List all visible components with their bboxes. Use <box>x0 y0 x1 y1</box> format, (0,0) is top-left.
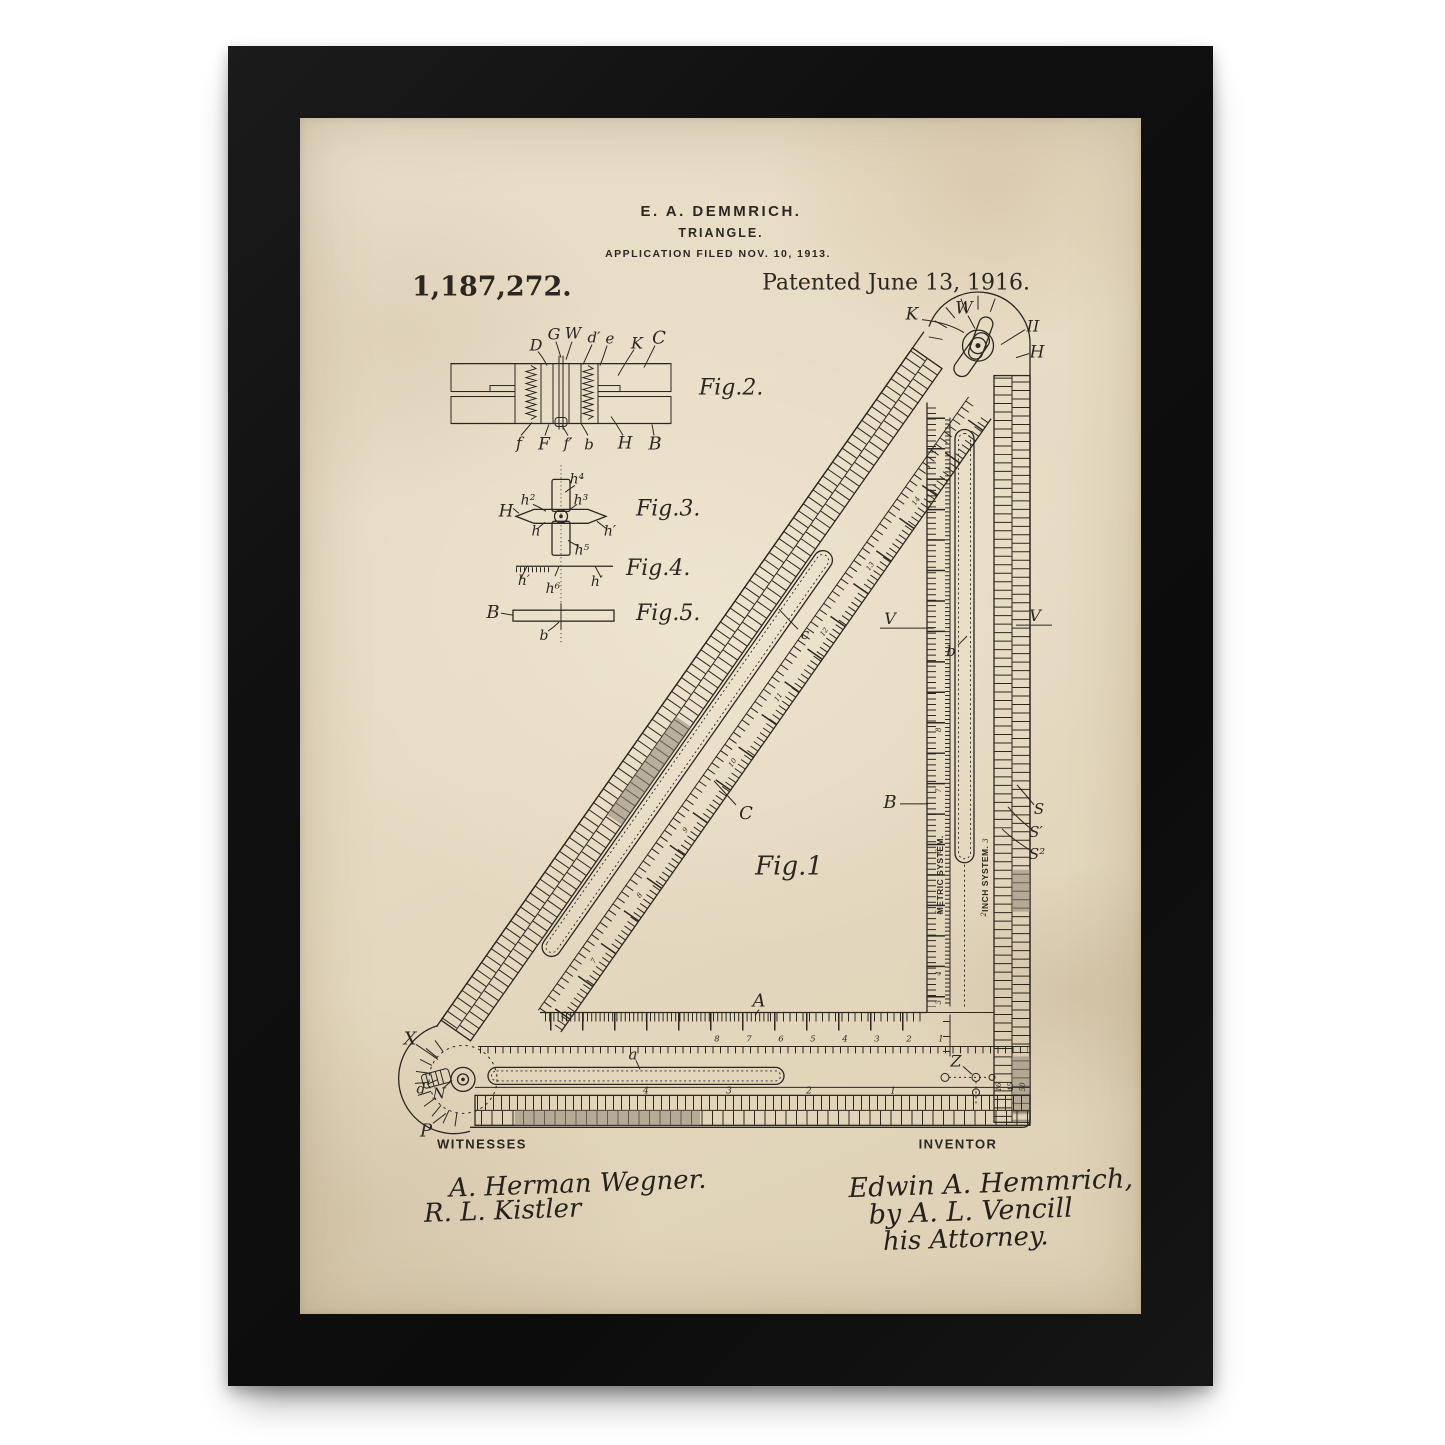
metric-num: 6 <box>935 849 943 854</box>
fig3-label: Fig.3. <box>635 496 700 521</box>
fig1-callout-d: d <box>417 1081 426 1097</box>
fig1-callout-ii: II <box>1026 317 1040 336</box>
fig2-callout-f-cap: F <box>537 434 551 454</box>
fig3-callout-h2: h² <box>521 492 536 508</box>
fig2-callout-c: C <box>652 328 666 349</box>
fig2-callout-k: K <box>630 334 644 353</box>
corner-num: 16 <box>995 1082 1003 1091</box>
inventor-label: INVENTOR <box>919 1136 998 1151</box>
metric-num: 4 <box>935 971 943 976</box>
fig5-bar <box>513 610 614 621</box>
patent-header: E. A. DEMMRICH. TRIANGLE. APPLICATION FI… <box>412 203 1030 303</box>
metric-system-label: METRIC SYSTEM. <box>935 835 945 914</box>
fig1-hypotenuse-arm: 7 8 9 10 11 12 13 14 <box>436 332 1010 1087</box>
rack-num: 4 <box>642 1086 649 1096</box>
fig2-callout-d-prime: d′ <box>588 329 602 347</box>
fig1-callout-c-arm: C <box>739 803 753 824</box>
patent-paper: E. A. DEMMRICH. TRIANGLE. APPLICATION FI… <box>300 118 1141 1314</box>
header-inventor-name: E. A. DEMMRICH. <box>641 203 802 220</box>
fig1-callout-k: K <box>905 305 920 325</box>
corner-num: 45 <box>1007 1082 1015 1092</box>
witnesses-label: WITNESSES <box>437 1136 527 1151</box>
fig3-callout-h5: h⁵ <box>575 542 590 558</box>
fig1-callout-h: H <box>1029 343 1046 363</box>
fig4-callout-h-prime-right: h′ <box>591 574 604 590</box>
fig1-callout-z: Z <box>949 1051 962 1070</box>
rack-num: 2 <box>805 1086 812 1096</box>
attorney-line: his Attorney. <box>882 1221 1048 1257</box>
fig1-callouts: V V b c C B A a S S′ S² Fig.1 <box>629 606 1052 1069</box>
inch-num: 3 <box>982 838 990 843</box>
fig5-label: Fig.5. <box>635 601 700 626</box>
fig3-callout-h3: h³ <box>574 492 589 508</box>
bottom-num: 5 <box>810 1034 815 1044</box>
metric-num: 3 <box>935 1000 943 1005</box>
rack-num: 1 <box>890 1086 896 1096</box>
hyp-num: 10 <box>727 756 739 768</box>
hyp-num: 13 <box>864 560 876 572</box>
fig1-callout-p: P <box>419 1120 433 1141</box>
fig1-callout-s2: S² <box>1029 845 1045 863</box>
fig2-callout-f-prime: f′ <box>563 434 574 452</box>
fig1-callout-s1: S′ <box>1029 823 1043 841</box>
fig2-section: D G W d′ e K C f F f′ b H B Fig.2. <box>451 324 763 455</box>
fig2-callout-w: W <box>565 324 583 343</box>
fig1-callout-n: N <box>431 1084 446 1102</box>
hyp-num: 14 <box>910 495 922 507</box>
fig3-callout-h: h <box>531 523 540 539</box>
bottom-num: 8 <box>714 1034 720 1044</box>
bottom-num: 3 <box>874 1034 879 1044</box>
bottom-num: 7 <box>746 1034 752 1044</box>
patent-drawing: E. A. DEMMRICH. TRIANGLE. APPLICATION FI… <box>300 118 1141 1314</box>
fig3-callout-h4: h⁴ <box>570 471 585 487</box>
fig2-label: Fig.2. <box>698 376 763 401</box>
fig1-callout-b-arm: B <box>882 792 896 813</box>
fig1-triangle-tool: 7 8 9 10 11 12 13 14 <box>399 292 1052 1141</box>
metric-num: 7 <box>935 788 943 793</box>
header-title: TRIANGLE. <box>678 226 763 240</box>
bottom-num: 4 <box>841 1034 847 1044</box>
fig4-callout-h-prime-left: h′ <box>518 573 531 589</box>
hyp-num: 8 <box>635 891 644 900</box>
fig2-callout-e: e <box>606 330 615 348</box>
hyp-num: 12 <box>819 626 831 638</box>
fig5-callout-b-cap: B <box>485 602 499 623</box>
bottom-num: 6 <box>778 1034 784 1044</box>
inch-num: 2 <box>980 912 988 918</box>
fig5-callout-b: b <box>540 628 549 644</box>
fig2-callout-b-cap: B <box>647 433 661 454</box>
fig1-callout-b-slot: b <box>946 642 956 660</box>
fig3-callout-h-prime: h′ <box>604 523 617 539</box>
fig2-callout-g: G <box>548 325 561 344</box>
fig1-bottom-left-corner: X d N P <box>399 1025 497 1141</box>
metric-num: 8 <box>935 727 943 732</box>
fig1-callout-a-arm: A <box>751 991 766 1012</box>
patent-number: 1,187,272. <box>412 272 572 303</box>
fig1-callout-c-slot: c <box>801 625 810 643</box>
fig2-callout-d: D <box>529 336 543 355</box>
witness-signature-2: R. L. Kistler <box>422 1193 583 1229</box>
fig1-callout-a-slot: a <box>629 1045 638 1063</box>
fig1-callout-w: W <box>955 299 974 319</box>
header-application-line: APPLICATION FILED NOV. 10, 1913. <box>605 249 831 260</box>
inch-system-label: INCH SYSTEM. <box>980 846 990 912</box>
fig345-group: H h² h⁴ h³ h h′ h⁵ Fig.3. h′ h⁶ h′ Fig.4… <box>485 465 700 645</box>
fig1-bottom-arm: 8 7 6 5 4 3 2 1 4 3 2 1 <box>470 1013 1030 1128</box>
fig2-callout-b: b <box>584 435 594 453</box>
fig1-callout-v-right: V <box>1029 606 1042 625</box>
bottom-num: 2 <box>905 1034 911 1044</box>
hyp-num: 7 <box>589 956 598 965</box>
fig1-vertical-arm: METRIC SYSTEM. INCH SYSTEM. 8 7 6 5 4 3 … <box>927 346 1030 1123</box>
fig1-callout-x: X <box>402 1028 418 1049</box>
fig1-callout-v-left: V <box>884 609 897 628</box>
fig4-label: Fig.4. <box>625 556 690 581</box>
picture-frame: E. A. DEMMRICH. TRIANGLE. APPLICATION FI… <box>228 46 1213 1386</box>
fig1-callout-s: S <box>1034 800 1044 818</box>
fig3-callout-h-cap: H <box>498 501 515 521</box>
hyp-num: 9 <box>681 825 690 834</box>
bottom-num: 1 <box>938 1034 943 1044</box>
patent-footer: WITNESSES A. Herman Wegner. R. L. Kistle… <box>422 1136 1133 1257</box>
rack-num: 3 <box>726 1086 732 1096</box>
fig2-callout-f: f <box>515 433 525 452</box>
fig4-callout-h6: h⁶ <box>546 581 561 597</box>
metric-num: 5 <box>935 910 943 915</box>
fig1-label: Fig.1 <box>754 852 823 882</box>
corner-num: 50 <box>1019 1082 1027 1091</box>
patent-date: Patented June 13, 1916. <box>762 271 1030 296</box>
fig1-corner-numbers: 16 45 50 <box>995 1082 1027 1092</box>
fig2-callout-h: H <box>617 433 634 453</box>
